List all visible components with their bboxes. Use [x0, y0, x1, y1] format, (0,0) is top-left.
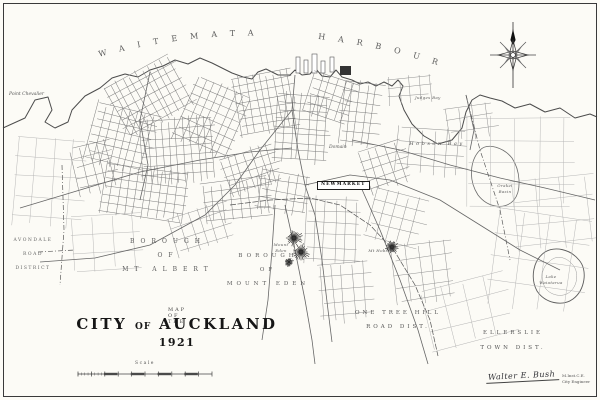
signature-credential: M.Inst.C.E. — [562, 373, 590, 378]
label-mount-eden-2: Eden — [275, 249, 287, 253]
label-domain: Domain — [329, 146, 347, 151]
map-auckland-1921: WAITEMATA HARBOUR Point Chevalier AVONDA… — [0, 0, 600, 400]
label-harbour: HARBOUR — [318, 32, 452, 71]
title-of: OF — [135, 322, 151, 332]
label-orakei-basin-2: Basin — [499, 190, 512, 194]
label-mt-albert-3: MT ALBERT — [122, 267, 214, 273]
label-point-chevalier: Point Chevalier — [9, 93, 44, 98]
label-avondale-1: AVONDALE — [14, 239, 53, 244]
label-waitemata: WAITEMATA — [98, 28, 267, 58]
label-mt-albert-2: OF — [157, 253, 178, 259]
harbour-title-layer: WAITEMATA HARBOUR — [0, 0, 600, 400]
title-year: 1921 — [159, 336, 196, 349]
label-ellerslie-2: TOWN DIST. — [480, 346, 545, 352]
label-mt-eden-borough-2: OF — [260, 268, 276, 274]
label-lake-waiatarua-1: Lake — [545, 275, 556, 279]
label-one-tree-hill-1: ONE TREE HILL — [355, 311, 441, 317]
label-lake-waiatarua-2: Waiatarua — [539, 281, 562, 285]
label-one-tree-hill-2: ROAD DIST. — [366, 325, 430, 331]
scale-label: Scale — [135, 362, 155, 367]
label-mt-albert-1: BOROUGH — [130, 239, 206, 245]
title-place: AUCKLAND — [159, 315, 278, 333]
label-hobson-bay: Hobson Bay — [409, 142, 464, 147]
title-city: CITY — [76, 315, 127, 333]
signature-role: City Engineer — [562, 379, 590, 384]
label-ellerslie-1: ELLERSLIE — [483, 331, 543, 337]
map-title: CITY OF AUCKLAND — [76, 315, 277, 333]
label-avondale-3: DISTRICT — [15, 267, 50, 272]
label-avondale-2: ROAD — [23, 253, 43, 258]
label-mt-eden-borough-3: MOUNT EDEN — [227, 282, 309, 288]
label-mt-eden-borough-1: BOROUGH — [238, 254, 297, 260]
label-judges-bay: Judges Bay — [415, 96, 441, 100]
label-mt-hobson: Mt Hobson — [368, 249, 393, 253]
label-orakei-basin-1: Orakei — [497, 184, 512, 188]
label-newmarket: NEWMARKET — [317, 181, 370, 190]
label-mount-eden-1: Mount — [274, 243, 289, 247]
signature-block: Walter E. Bush M.Inst.C.E. City Engineer — [486, 371, 590, 384]
engineer-signature: Walter E. Bush — [485, 369, 559, 384]
